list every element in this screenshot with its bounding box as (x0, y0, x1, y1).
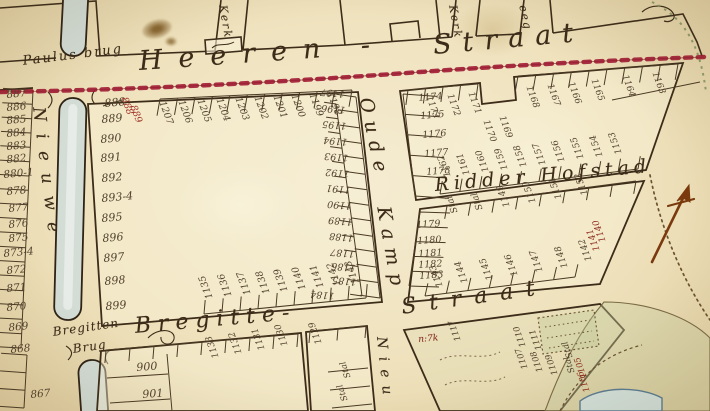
place-label: Nieuwe (29, 106, 63, 245)
parcel-number: 1137 (236, 270, 253, 296)
parcel-number: 1197 (320, 86, 345, 98)
parcel-number: 1145 (479, 256, 495, 281)
parcel-number: 899 (105, 299, 127, 312)
map-labels: Heeren -StraatPaulus brugNieuweOudeKampR… (0, 0, 710, 411)
parcel-number: 1170 (481, 119, 497, 144)
parcel-number: 1117 (448, 319, 463, 342)
parcel-number: 880-1 (3, 167, 34, 180)
parcel-number: 887 (6, 88, 27, 100)
parcel-number: 875 (8, 232, 29, 244)
parcel-number: 1171 (466, 91, 482, 116)
parcel-number: 1203 (233, 96, 250, 122)
parcel-number: 1168 (524, 85, 540, 110)
parcel-number: 1138 (255, 269, 272, 295)
parcel-number: 1206 (176, 99, 193, 125)
place-label: Oude (355, 96, 391, 181)
parcel-number: 890 (100, 132, 122, 145)
parcel-number: 1165 (589, 78, 605, 103)
parcel-number: 1111 (529, 328, 544, 351)
parcel-number: 1140 (291, 265, 308, 291)
parcel-number: 872 (6, 264, 27, 276)
parcel-number: 1191 (326, 182, 351, 194)
parcel-number: 1176 (422, 129, 447, 141)
parcel-number: 1163 (650, 71, 666, 96)
parcel-number: 1204 (214, 97, 231, 123)
parcel-number: 867 (30, 388, 51, 400)
parcel-number: 1109 (545, 353, 560, 376)
place-label: Bregitte- (134, 302, 297, 338)
parcel-number: 873-4 (3, 246, 34, 259)
parcel-number: 1148 (554, 244, 570, 269)
parcel-number: 1200 (289, 93, 306, 119)
parcel-number: 886 (6, 101, 27, 113)
parcel-number: 1193 (324, 150, 349, 162)
parcel-number: 1157 (532, 141, 548, 166)
place-label: Straat (400, 276, 549, 318)
place-label: Brug (72, 338, 107, 355)
parcel-number: 1169 (497, 115, 513, 140)
parcel-number: 900 (136, 361, 158, 373)
parcel-number: 1201 (271, 94, 288, 120)
parcel-number: 1207 (157, 100, 174, 126)
place-label: Kamp (373, 205, 407, 295)
parcel-number: 1106 (577, 370, 592, 393)
parcel-number: 871 (6, 282, 27, 294)
historical-map-canvas[interactable]: Heeren -StraatPaulus brugNieuweOudeKampR… (0, 0, 710, 411)
parcel-number: 898 (104, 274, 126, 287)
parcel-number: 1164 (620, 74, 636, 99)
parcel-number: 878 (6, 185, 27, 197)
parcel-number: 1154 (589, 133, 605, 158)
parcel-annotation: Stal (336, 383, 350, 402)
parcel-number: 1135 (198, 274, 215, 300)
parcel-number: 1167 (545, 83, 561, 108)
parcel-number: 891 (100, 151, 122, 164)
parcel-number: 868 (10, 343, 31, 355)
place-label: Paulus brug (22, 43, 124, 68)
parcel-number: 1205 (195, 98, 212, 124)
parcel-number: 1147 (529, 248, 545, 273)
parcel-annotation: Stal (446, 194, 461, 214)
parcel-number: 885 (6, 114, 27, 126)
place-label: Nieu (374, 336, 395, 403)
parcel-number: 1195 (322, 118, 347, 130)
parcel-number: 1110 (513, 325, 528, 348)
parcel-number: 897 (103, 251, 125, 264)
parcel-number: 884 (6, 127, 27, 139)
parcel-number: 876 (8, 218, 29, 230)
parcel-number: 869 (8, 321, 29, 333)
parcel-number: 895 (101, 211, 123, 224)
parcel-number: 1192 (325, 166, 350, 178)
parcel-number: 1144 (454, 259, 470, 284)
place-label: Bregitten (52, 317, 120, 338)
parcel-number: 1196 (321, 102, 346, 114)
parcel-number: 1190 (327, 198, 352, 210)
parcel-annotation: Stal (471, 191, 486, 211)
parcel-number: 901 (142, 388, 164, 400)
parcel-number: 1158 (513, 143, 529, 168)
parcel-number: 889 (101, 112, 123, 125)
parcel-number: 892 (101, 171, 123, 184)
parcel-number: 1156 (551, 138, 567, 163)
parcel-number: 1179 (416, 219, 441, 230)
parcel-number: 877 (8, 202, 29, 214)
place-label: Kerk (217, 4, 234, 40)
parcel-number: 883 (6, 140, 27, 152)
parcel-number: 889 (128, 104, 143, 124)
parcel-number: 1187 (330, 246, 355, 258)
parcel-number: 1184 (310, 288, 335, 300)
parcel-number: 870 (6, 301, 27, 313)
parcel-number: 1202 (252, 95, 269, 121)
place-label: Heeren - (138, 31, 387, 75)
parcel-number: 1107 (515, 347, 530, 370)
parcel-number: 1189 (328, 214, 353, 226)
parcel-number: 1146 (504, 252, 520, 277)
parcel-number: 882 (6, 153, 27, 165)
parcel-number: 1136 (217, 272, 234, 298)
parcel-number: 1159 (494, 146, 510, 171)
parcel-number: 1172 (445, 93, 461, 118)
parcel-number: 1188 (329, 230, 354, 242)
parcel-number: 1131 (251, 326, 267, 351)
parcel-number: 893-4 (101, 190, 134, 204)
parcel-number: 1129 (308, 320, 324, 345)
parcel-number: 896 (102, 231, 124, 244)
parcel-number: 1133 (205, 334, 221, 359)
parcel-number: 1155 (570, 135, 586, 160)
parcel-number: 1180 (417, 235, 442, 246)
place-label: n:7k (418, 334, 439, 345)
parcel-number: 1132 (228, 330, 244, 355)
parcel-number: 1108 (530, 350, 545, 373)
parcel-annotation: Stal (339, 360, 353, 379)
parcel-number: 1166 (566, 81, 582, 106)
parcel-number: 1139 (273, 267, 290, 293)
parcel-number: 1141 (309, 263, 326, 289)
parcel-number: 1153 (608, 130, 624, 155)
parcel-number: 1194 (323, 134, 348, 146)
parcel-number: 1130 (274, 322, 290, 347)
